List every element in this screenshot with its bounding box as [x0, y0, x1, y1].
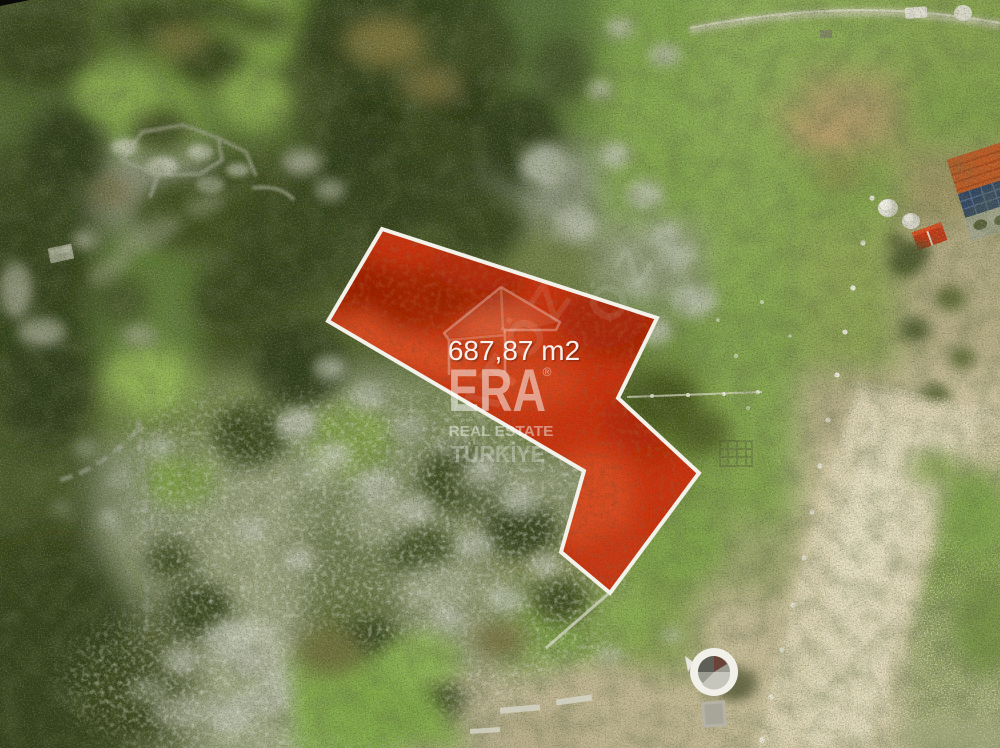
svg-text:ERA: ERA: [448, 357, 546, 424]
svg-text:REAL ESTATE: REAL ESTATE: [449, 423, 554, 440]
svg-text:TÜRKİYE: TÜRKİYE: [451, 441, 545, 467]
svg-text:®: ®: [543, 365, 552, 379]
